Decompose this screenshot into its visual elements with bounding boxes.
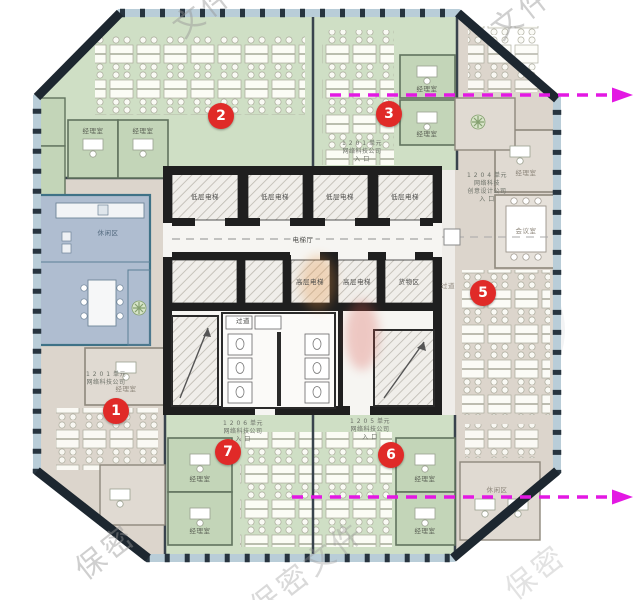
toilet-block: [222, 313, 335, 408]
zone-marker-2: 2: [208, 103, 234, 129]
zone-marker-1: 1: [103, 398, 129, 424]
desk-area-zone6-7: [240, 432, 392, 547]
corridor-right: [442, 170, 455, 415]
annotation-line: 网络科技公司: [223, 428, 263, 436]
zone-marker-6: 6: [378, 442, 404, 468]
annotation-line: 入 口: [350, 434, 390, 442]
annotation-unit-bottom-right: 1 2 0 5 单元 网络科技公司 入 口: [350, 418, 390, 442]
low-elevator-shafts: [172, 172, 433, 220]
annotation-line: 1 2 0 5 单元: [350, 418, 390, 426]
annotation-line: 1 2 0 6 单元: [223, 420, 263, 428]
desk-area-zone2: [95, 35, 305, 115]
logo-watermark: [345, 300, 379, 370]
annotation-line: 1 2 0 1 单元: [342, 140, 382, 148]
annotation-line: 创意设计公司: [467, 188, 507, 196]
annotation-line: 网络科技: [467, 180, 507, 188]
zone-marker-7: 7: [215, 439, 241, 465]
plant-icon: [471, 115, 485, 129]
annotation-line: 网络科技公司: [86, 379, 126, 387]
annotation-line: 入 口: [342, 156, 382, 164]
zone-marker-5: 5: [470, 280, 496, 306]
meeting-table-right: [506, 198, 546, 260]
annotation-unit-top: 1 2 0 1 单元 网络科技公司 入 口: [342, 140, 382, 164]
annotation-line: 1 2 0 4 单元: [467, 172, 507, 180]
zone-marker-3: 3: [376, 101, 402, 127]
stairwell-right: [374, 330, 434, 406]
annotation-unit-left: 1 2 0 1 单元 网络科技公司: [86, 371, 126, 387]
annotation-unit-right: 1 2 0 4 单元 网络科技 创意设计公司 入 口: [467, 172, 507, 204]
desk-area-bottomright: [465, 424, 540, 458]
plant-icon: [132, 301, 146, 315]
zone-blue-lounge: [38, 195, 150, 345]
annotation-line: 入 口: [467, 196, 507, 204]
stairwell-left: [172, 316, 218, 406]
corridor-marker-box: [444, 229, 460, 245]
annotation-line: 1 2 0 1 单元: [86, 371, 126, 379]
annotation-line: 网络科技公司: [342, 148, 382, 156]
floorplan-page: 低层电梯 低层电梯 低层电梯 低层电梯 电梯厅 高层电梯 高层电梯 货物区 过道…: [0, 0, 637, 600]
logo-watermark: [300, 255, 336, 310]
annotation-line: 网络科技公司: [350, 426, 390, 434]
